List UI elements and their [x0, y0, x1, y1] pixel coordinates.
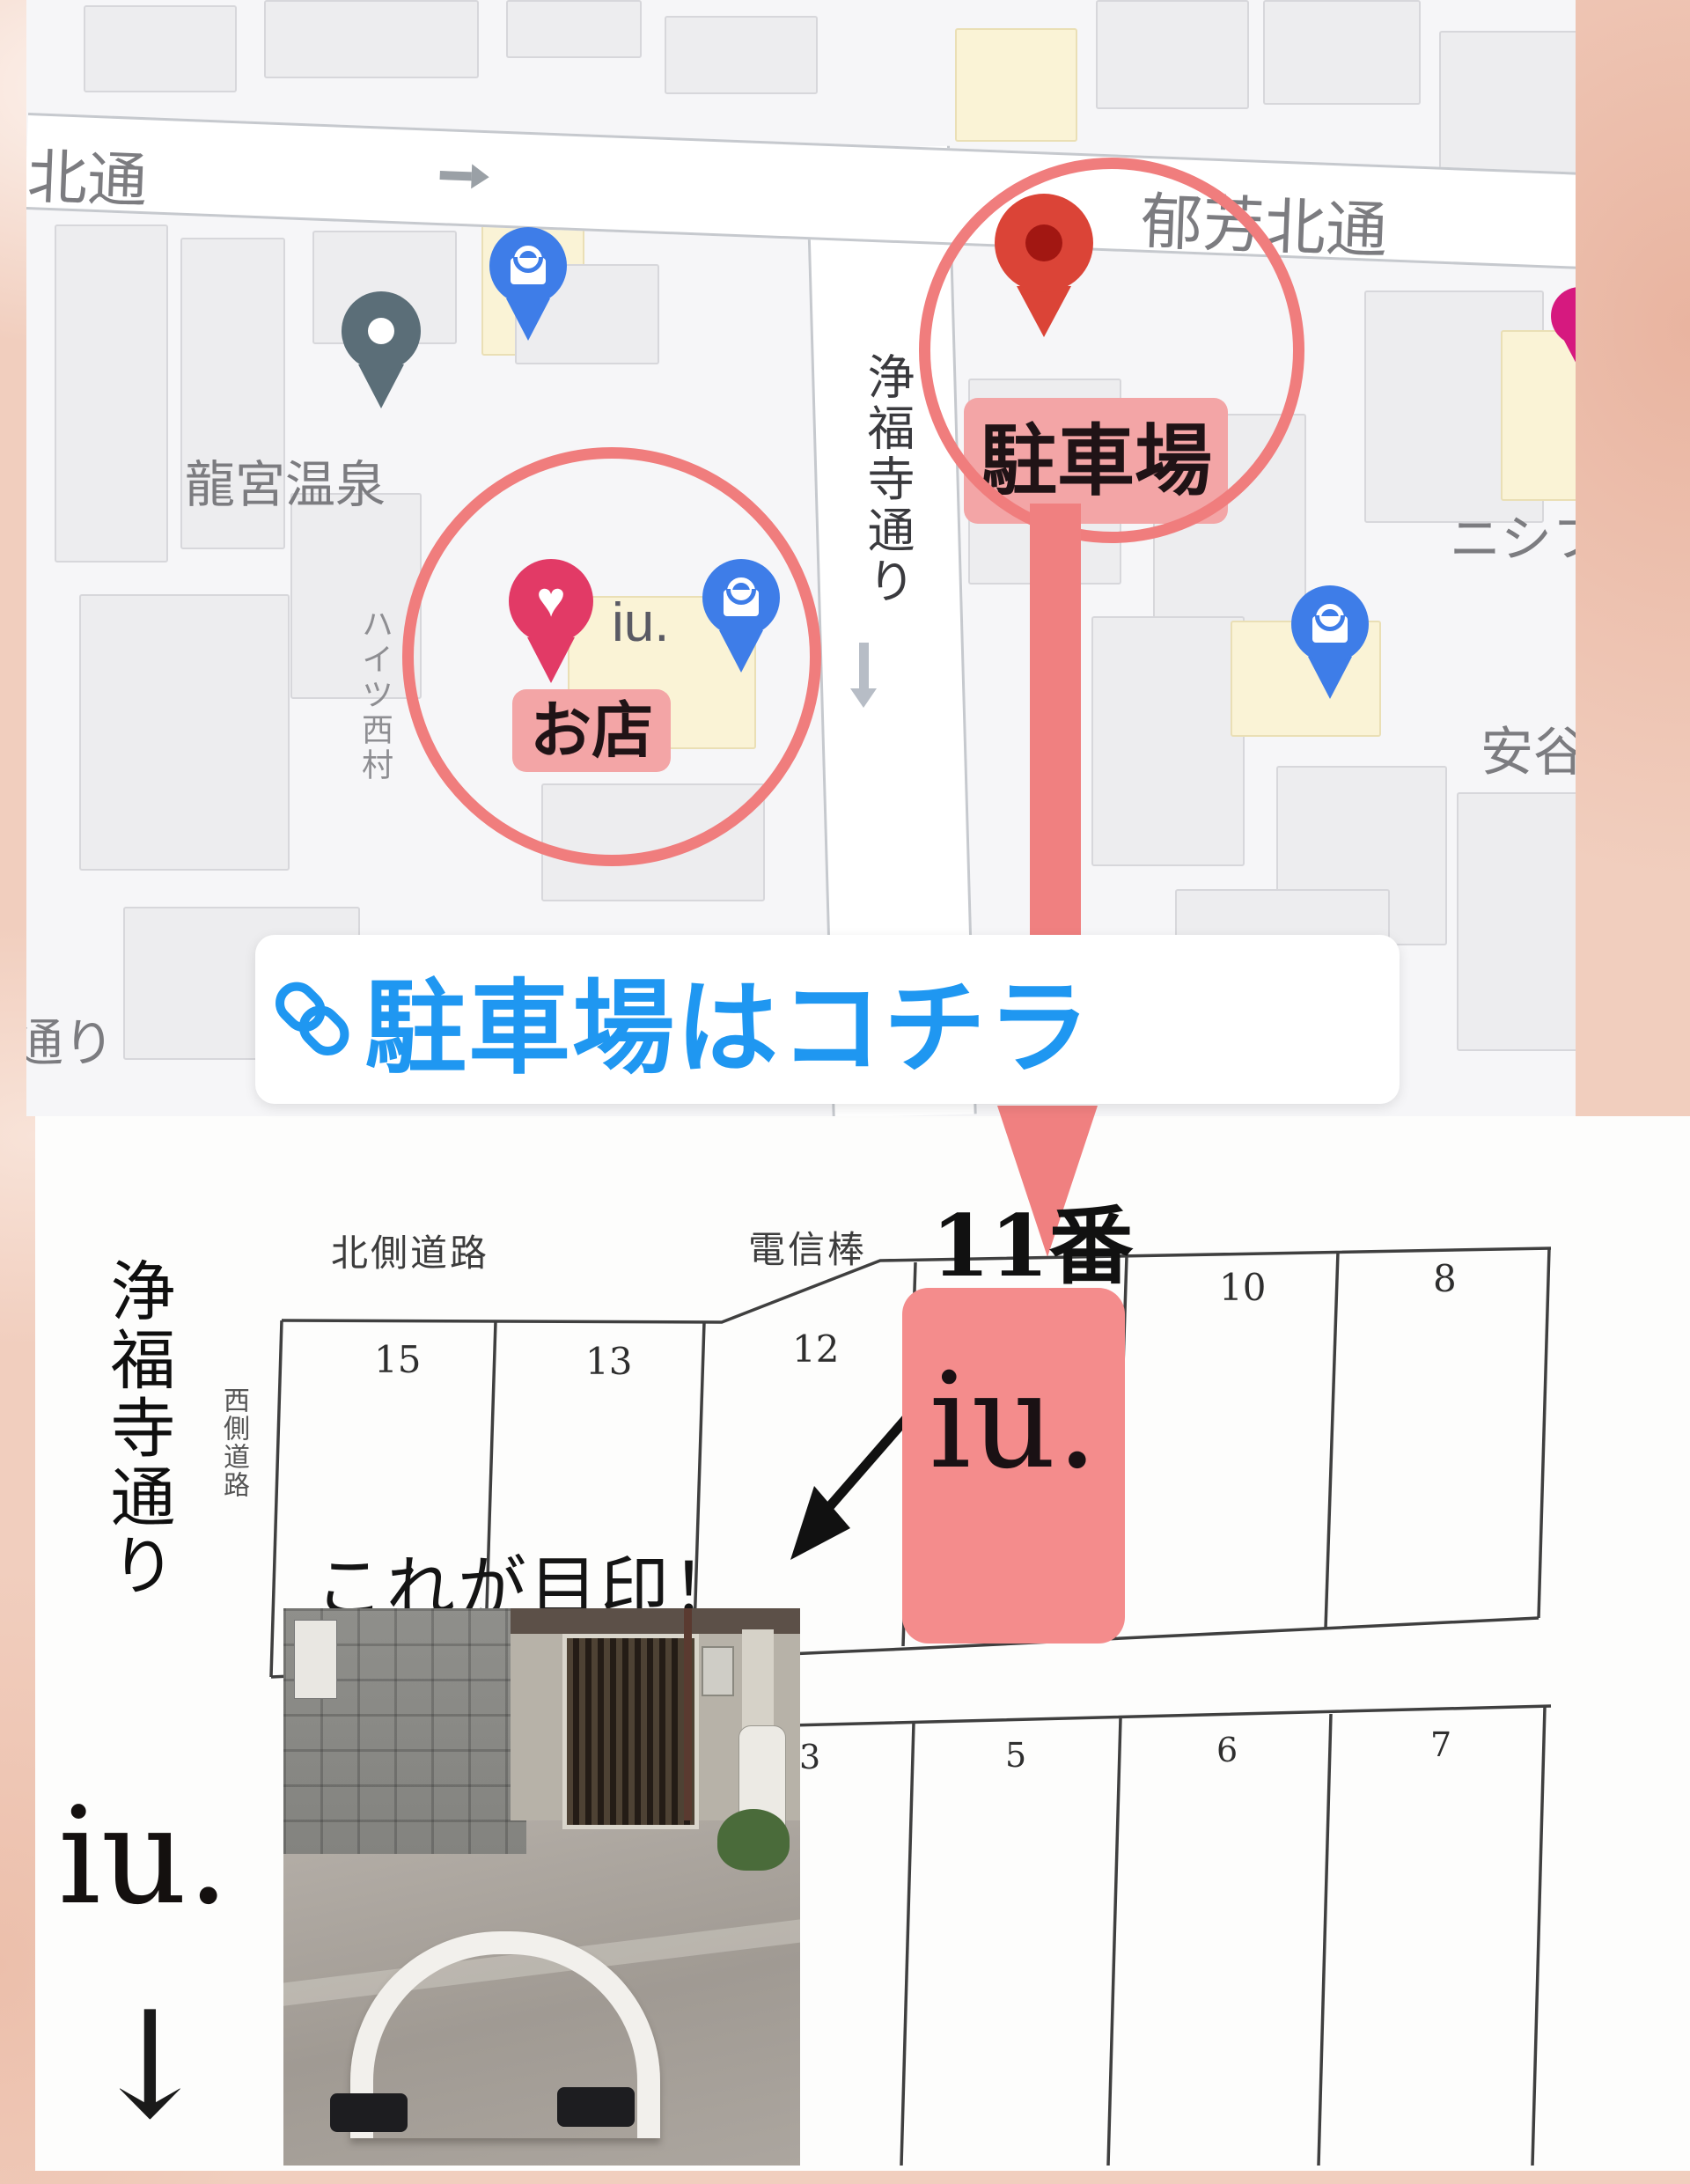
- space-number: 8: [1433, 1257, 1457, 1300]
- landmark-photo: [283, 1608, 800, 2166]
- shopping-bag-icon: [511, 258, 546, 284]
- map-building: [84, 5, 237, 92]
- shop-highlight-circle: [402, 447, 821, 866]
- guide-arrow-shaft: [1030, 504, 1081, 996]
- map-building: [1439, 31, 1576, 180]
- street-label-partial: 芳北通: [26, 125, 149, 219]
- photo-wall-sign: [294, 1620, 337, 1700]
- shopping-bag-icon: [1312, 616, 1348, 643]
- right-arrow-icon: [439, 163, 489, 189]
- photo-drainpipe: [684, 1608, 692, 1820]
- poi-label-yasutani: 安谷: [1481, 710, 1576, 786]
- shopping-pin: [489, 227, 567, 341]
- map-pin-partial: [1551, 287, 1576, 371]
- map-building: [264, 0, 479, 78]
- down-direction-arrow: ↓: [88, 1979, 212, 2151]
- street-label-jofukuji: 浄福寺通り: [852, 352, 922, 607]
- photo-meter-box: [702, 1646, 734, 1696]
- space-number: 12: [792, 1327, 839, 1371]
- photo-slatted-door: [562, 1634, 699, 1829]
- map-building: [1263, 0, 1421, 105]
- space-number: 3: [799, 1738, 820, 1776]
- brand-in-space: iu.: [902, 1345, 1125, 1498]
- poi-label-onsen: 龍宮温泉: [185, 445, 386, 517]
- map-building: [79, 594, 290, 871]
- parking-link-banner[interactable]: 駐車場はコチラ: [255, 935, 1400, 1104]
- map-building: [665, 16, 818, 94]
- photo-barrier-foot: [330, 2093, 408, 2132]
- map-building: [1457, 792, 1576, 1051]
- shopping-pin: [1291, 585, 1369, 699]
- link-icon: [271, 975, 352, 1063]
- parking-link-label: 駐車場はコチラ: [364, 945, 1091, 1093]
- map-building: [506, 0, 642, 58]
- photo-plant: [717, 1809, 790, 1871]
- parking-highlight-circle: [919, 158, 1304, 543]
- space-number: 7: [1430, 1725, 1451, 1764]
- space-number: 15: [374, 1338, 421, 1381]
- space-number: 13: [585, 1340, 632, 1383]
- space-number: 6: [1216, 1731, 1238, 1769]
- space-number: 5: [1005, 1736, 1026, 1775]
- label-west-road: 西側道路: [214, 1386, 253, 1499]
- map-building: [55, 224, 168, 563]
- label-street-jofukuji: 浄福寺通り: [91, 1257, 185, 1600]
- space-number-11: 11番: [931, 1178, 1134, 1300]
- street-label-bottom-partial: 通り: [26, 1002, 114, 1076]
- map-building: [1091, 616, 1245, 866]
- map-building: [955, 28, 1077, 142]
- pin-dot-icon: [368, 318, 394, 344]
- place-pin: [342, 291, 421, 408]
- down-arrow-icon: [850, 643, 877, 708]
- poi-label-nishifu: ニシフ: [1450, 497, 1576, 571]
- photo-barrier-foot: [557, 2087, 635, 2126]
- space-number: 10: [1219, 1266, 1266, 1309]
- brand-logo: iu.: [58, 1778, 230, 1934]
- poi-label-heights: ハイツ西村: [352, 607, 398, 783]
- label-north-road: 北側道路: [331, 1224, 489, 1277]
- map-building: [1096, 0, 1249, 109]
- label-telegraph-pole: 電信棒: [748, 1220, 867, 1274]
